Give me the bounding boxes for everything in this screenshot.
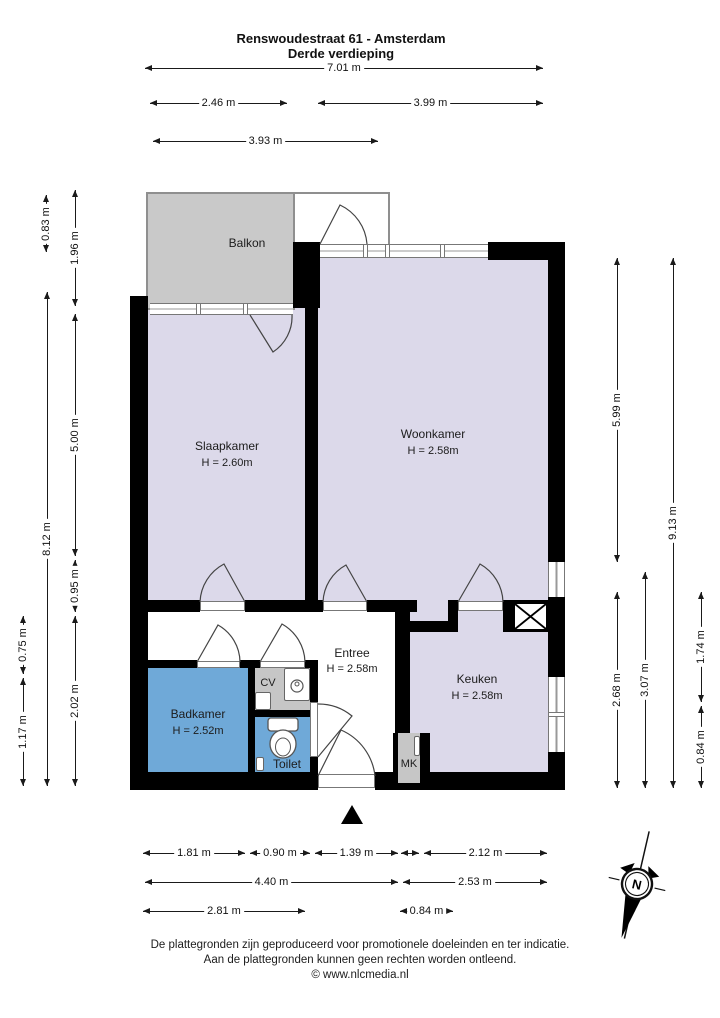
window-woonkamer-top	[320, 244, 488, 258]
cv-cabinet	[255, 692, 271, 710]
dimension-line: 0.95 m	[68, 560, 82, 612]
cv-boiler	[284, 668, 310, 701]
doorsill-frontdoor	[318, 774, 375, 788]
dimension-line: 0.84 m	[400, 904, 453, 918]
dimension-line: 1.81 m	[143, 846, 245, 860]
dimension-line: 1.39 m	[315, 846, 398, 860]
mk-panel	[414, 736, 420, 756]
dimension-line: 0.90 m	[250, 846, 310, 860]
doorsill-keuken	[458, 601, 503, 611]
balkon-extension	[295, 192, 390, 244]
doorsill-cv	[260, 661, 305, 668]
wall-slaap-woon	[305, 308, 318, 612]
label-woonkamer-height: H = 2.58m	[407, 445, 458, 457]
label-woonkamer: Woonkamer	[401, 427, 465, 441]
wall-mk-right	[420, 733, 430, 772]
label-badkamer-height: H = 2.52m	[172, 725, 223, 737]
wall-keuken-step-h	[402, 621, 458, 632]
dimension-line: 1.74 m	[694, 592, 708, 702]
wall-right-bottom	[548, 752, 565, 790]
dimension-line: 8.12 m	[40, 292, 54, 786]
window-tick	[243, 303, 248, 315]
label-toilet: Toilet	[273, 757, 301, 771]
dimension-line: 0.84 m	[694, 706, 708, 788]
dimension-line: 3.07 m	[638, 572, 652, 788]
label-keuken-height: H = 2.58m	[451, 690, 502, 702]
dimension-line: 2.02 m	[68, 616, 82, 786]
wall-cv-toilet	[255, 710, 310, 717]
room-balkon	[146, 192, 295, 310]
dimension-line: 0.75 m	[16, 616, 30, 674]
window-right-woonkamer	[548, 562, 565, 597]
dimension-line-small	[401, 846, 419, 860]
doorsill-toilet	[310, 702, 318, 757]
label-keuken: Keuken	[457, 672, 498, 686]
label-entree: Entree	[334, 646, 369, 660]
entrance-arrow-icon	[341, 805, 363, 824]
room-entree-hall	[318, 610, 398, 774]
doorsill-slaapkamer	[200, 601, 245, 611]
label-entree-height: H = 2.58m	[326, 663, 377, 675]
label-balkon: Balkon	[229, 236, 266, 250]
dimension-line: 5.00 m	[68, 314, 82, 556]
footer-disclaimer-2: Aan de plattegronden kunnen geen rechten…	[0, 954, 720, 966]
dimension-line: 1.17 m	[16, 678, 30, 786]
wall-right-top	[548, 242, 565, 562]
wall-woonkamer-top-right	[488, 242, 565, 260]
dimension-line: 2.12 m	[424, 846, 547, 860]
footer-credit: © www.nlcmedia.nl	[0, 969, 720, 981]
wall-entree-keuken	[395, 600, 410, 733]
dimension-line: 2.53 m	[403, 875, 547, 889]
dimension-line: 2.46 m	[150, 96, 287, 110]
window-tick	[363, 244, 368, 258]
footer-disclaimer-1: De plattegronden zijn geproduceerd voor …	[0, 939, 720, 951]
dimension-line: 0.83 m	[39, 195, 53, 252]
wall-column-balkon	[293, 242, 320, 308]
wall-band-2	[245, 600, 323, 612]
window-tick	[196, 303, 201, 315]
wall-badkamer-cv	[248, 660, 255, 772]
dimension-line: 1.96 m	[68, 190, 82, 306]
label-mk: MK	[401, 758, 418, 770]
dimension-line: 4.40 m	[145, 875, 398, 889]
doorsill-entree	[323, 601, 367, 611]
dimension-line: 7.01 m	[145, 61, 543, 75]
window-tick	[548, 712, 565, 717]
dimension-line: 9.13 m	[666, 258, 680, 788]
wall-toilet-right-bottom	[310, 757, 318, 772]
label-slaapkamer-height: H = 2.60m	[201, 457, 252, 469]
wall-bottom-left	[130, 772, 318, 790]
label-badkamer: Badkamer	[171, 707, 226, 721]
wall-band-1	[148, 600, 200, 612]
dimension-line: 2.68 m	[610, 592, 624, 788]
floorplan-page: Renswoudestraat 61 - Amsterdam Derde ver…	[0, 0, 720, 1018]
window-tick	[385, 244, 390, 258]
toilet-box	[256, 757, 264, 771]
page-subtitle: Derde verdieping	[0, 46, 682, 61]
window-slaapkamer-top	[150, 303, 293, 315]
dimension-line: 3.93 m	[153, 134, 378, 148]
header: Renswoudestraat 61 - Amsterdam Derde ver…	[0, 31, 682, 61]
wall-left	[130, 296, 148, 790]
dimension-line: 2.81 m	[143, 904, 305, 918]
label-cv: CV	[260, 677, 275, 689]
dimension-line: 3.99 m	[318, 96, 543, 110]
window-tick	[440, 244, 445, 258]
room-slaapkamer	[148, 308, 308, 604]
compass-tick-west	[609, 877, 620, 879]
wall-badkamer-top-1	[148, 660, 197, 668]
doorsill-badkamer	[197, 661, 240, 668]
dimension-line: 5.99 m	[610, 258, 624, 562]
compass-rose: N	[592, 824, 682, 944]
compass-tick-east	[655, 888, 666, 890]
wall-toilet-right-top	[310, 660, 318, 702]
page-title: Renswoudestraat 61 - Amsterdam	[0, 31, 682, 46]
shaft-box	[513, 602, 548, 631]
wall-right-mid	[548, 597, 565, 677]
label-slaapkamer: Slaapkamer	[195, 439, 259, 453]
